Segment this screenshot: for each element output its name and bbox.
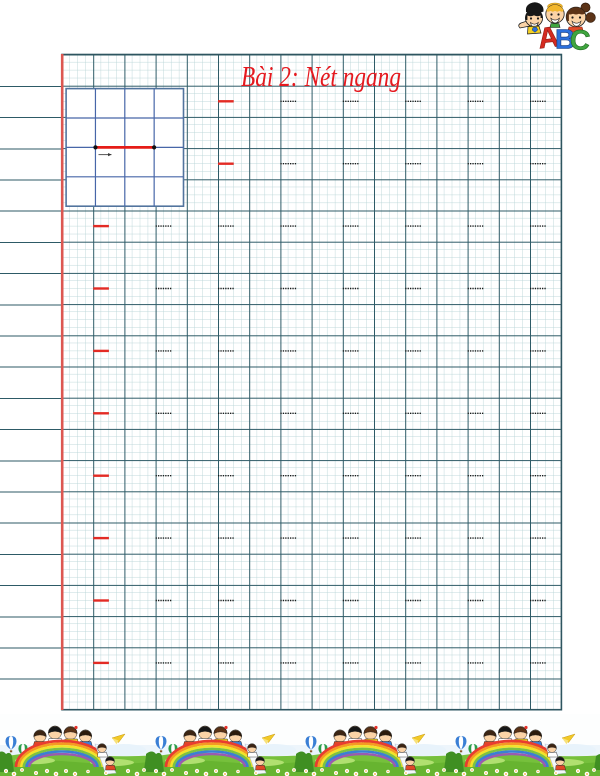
svg-text:C: C <box>568 24 591 57</box>
svg-text:Bài 2: Nét ngang: Bài 2: Nét ngang <box>241 61 401 93</box>
